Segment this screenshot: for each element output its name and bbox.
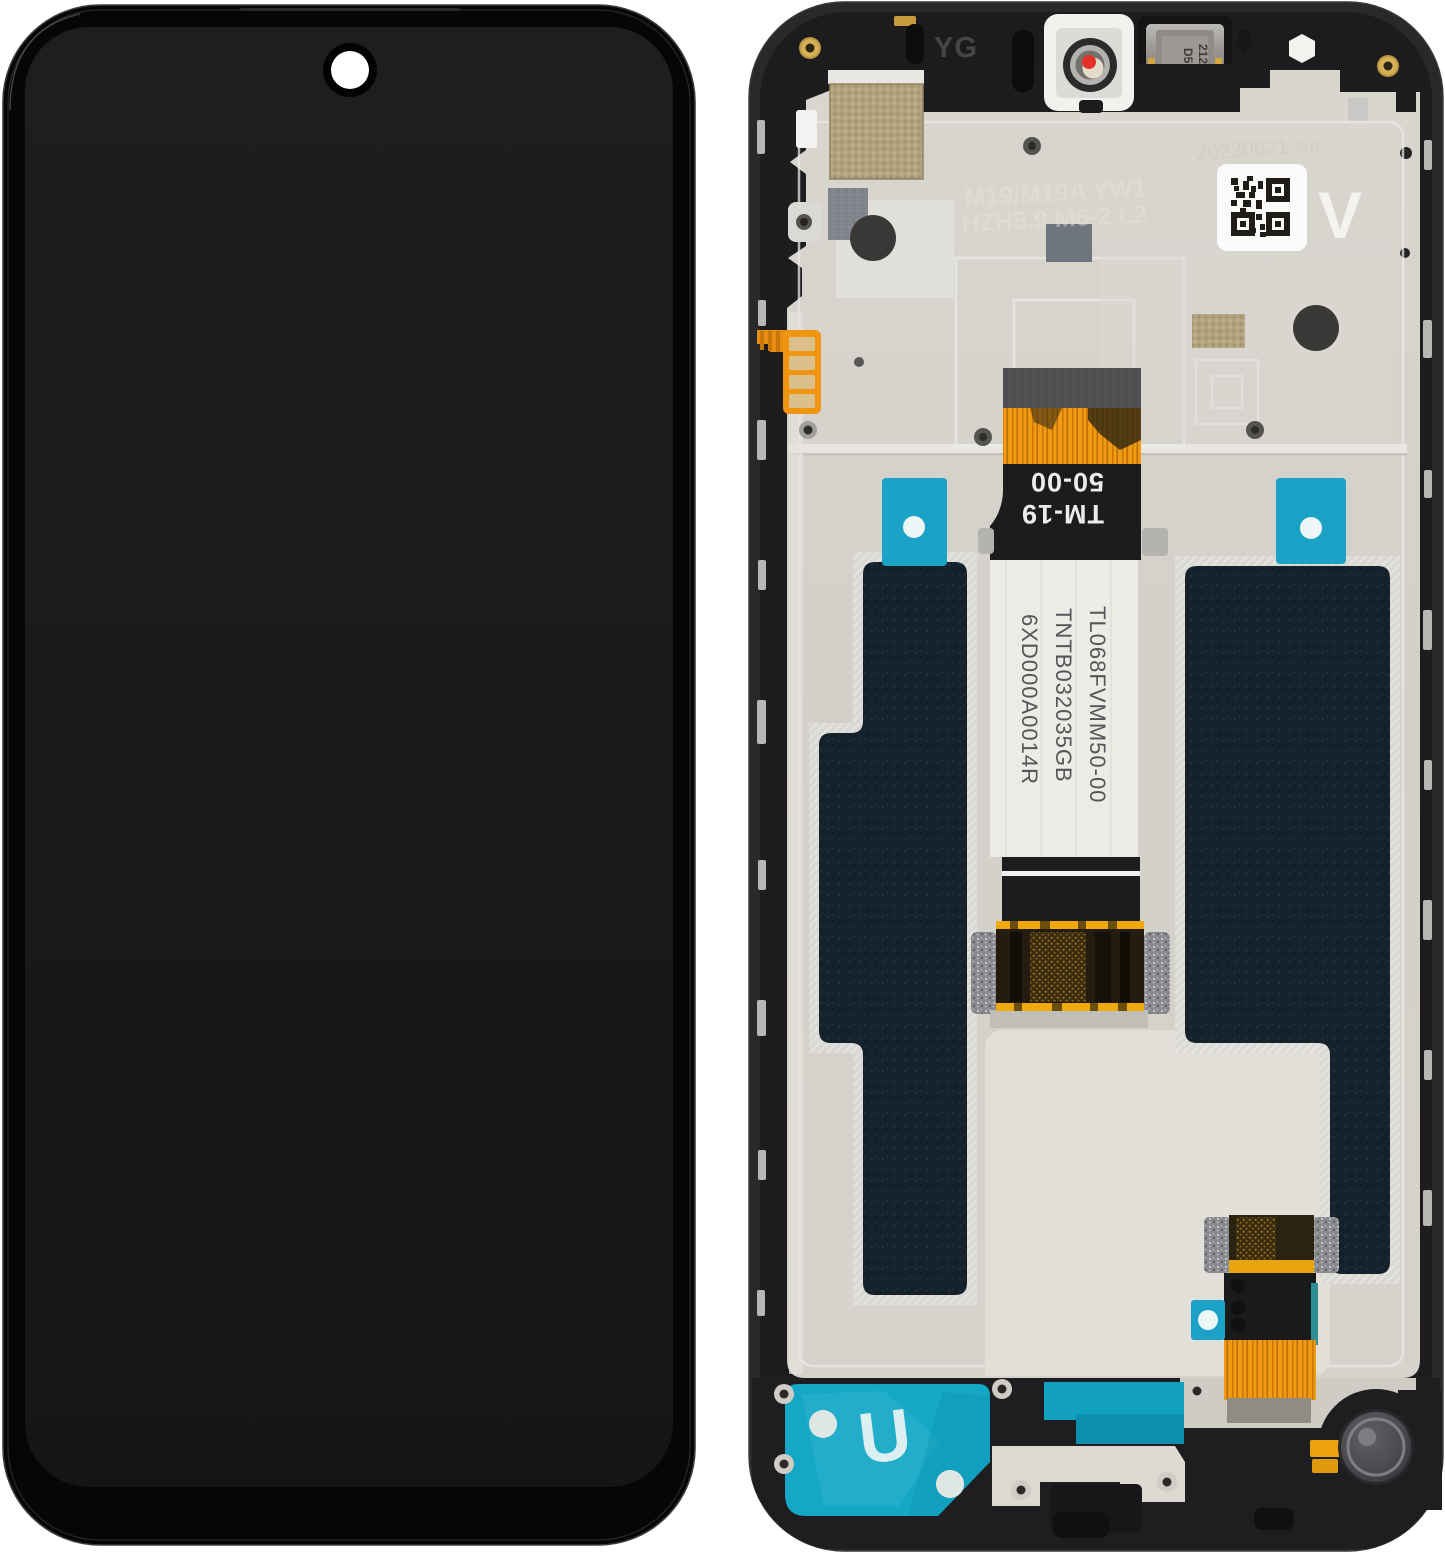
svg-text:YG: YG — [934, 32, 978, 64]
svg-text:TL068FVMM50-00: TL068FVMM50-00 — [1085, 606, 1110, 803]
svg-text:U: U — [854, 1394, 915, 1480]
svg-text:TNTB032035GB: TNTB032035GB — [1051, 608, 1076, 783]
svg-text:TM-19: TM-19 — [1021, 499, 1104, 529]
svg-text:50-00: 50-00 — [1030, 467, 1104, 497]
svg-text:V: V — [1318, 178, 1362, 252]
svg-text:6XD000A0014R: 6XD000A0014R — [1017, 614, 1042, 785]
